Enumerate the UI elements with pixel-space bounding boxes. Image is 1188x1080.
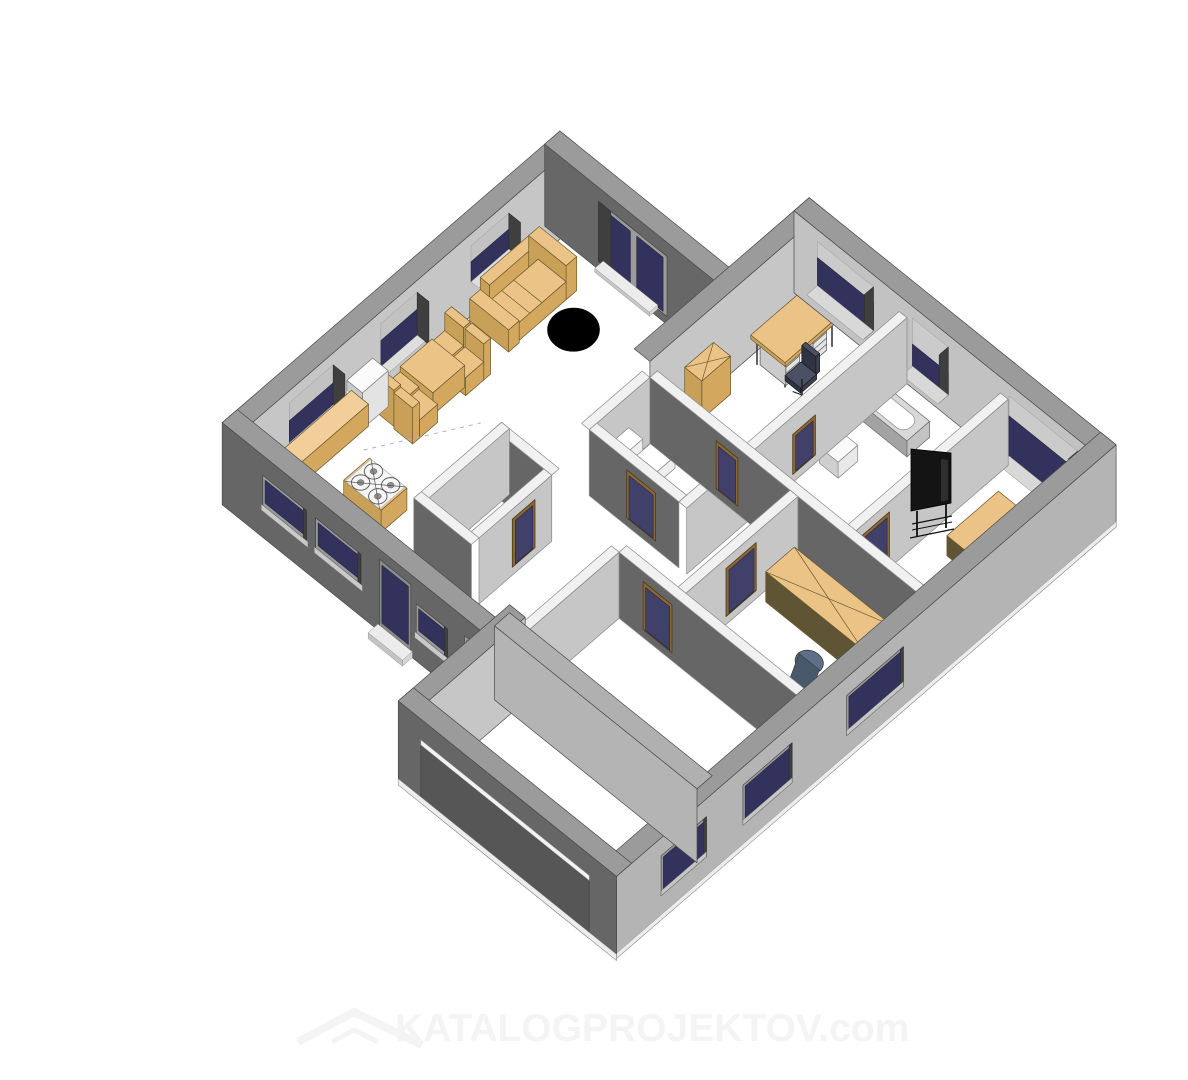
svg-text:KATALOGPROJEKTOV.com: KATALOGPROJEKTOV.com: [395, 1007, 909, 1050]
